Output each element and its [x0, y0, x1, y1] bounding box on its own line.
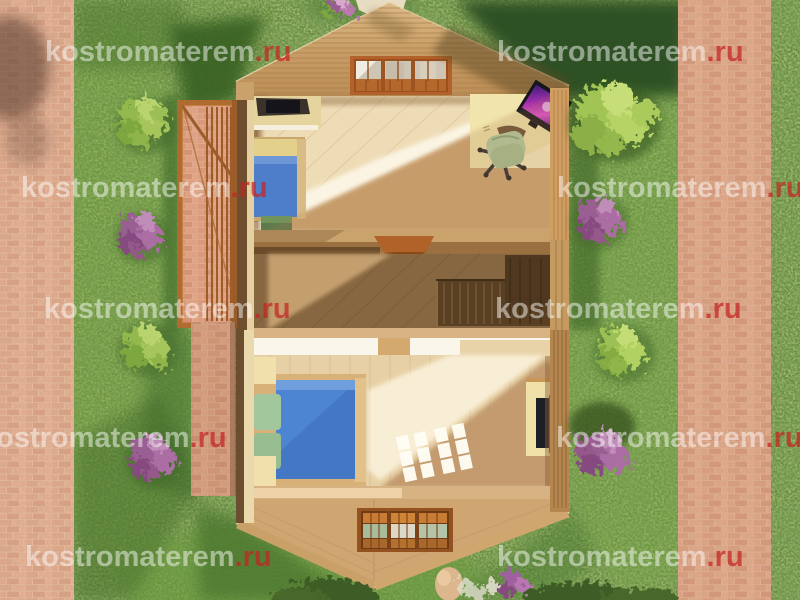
svg-text:kostromaterem.ru: kostromaterem.ru — [45, 36, 292, 68]
svg-text:kostromaterem.ru: kostromaterem.ru — [556, 422, 800, 454]
svg-text:kostromaterem.ru: kostromaterem.ru — [0, 422, 227, 454]
svg-text:kostromaterem.ru: kostromaterem.ru — [25, 541, 272, 573]
svg-text:kostromaterem.ru: kostromaterem.ru — [497, 36, 744, 68]
svg-text:kostromaterem.ru: kostromaterem.ru — [497, 541, 744, 573]
svg-text:kostromaterem.ru: kostromaterem.ru — [495, 293, 742, 325]
svg-text:kostromaterem.ru: kostromaterem.ru — [557, 172, 800, 204]
svg-text:kostromaterem.ru: kostromaterem.ru — [44, 293, 291, 325]
svg-text:kostromaterem.ru: kostromaterem.ru — [21, 172, 268, 204]
